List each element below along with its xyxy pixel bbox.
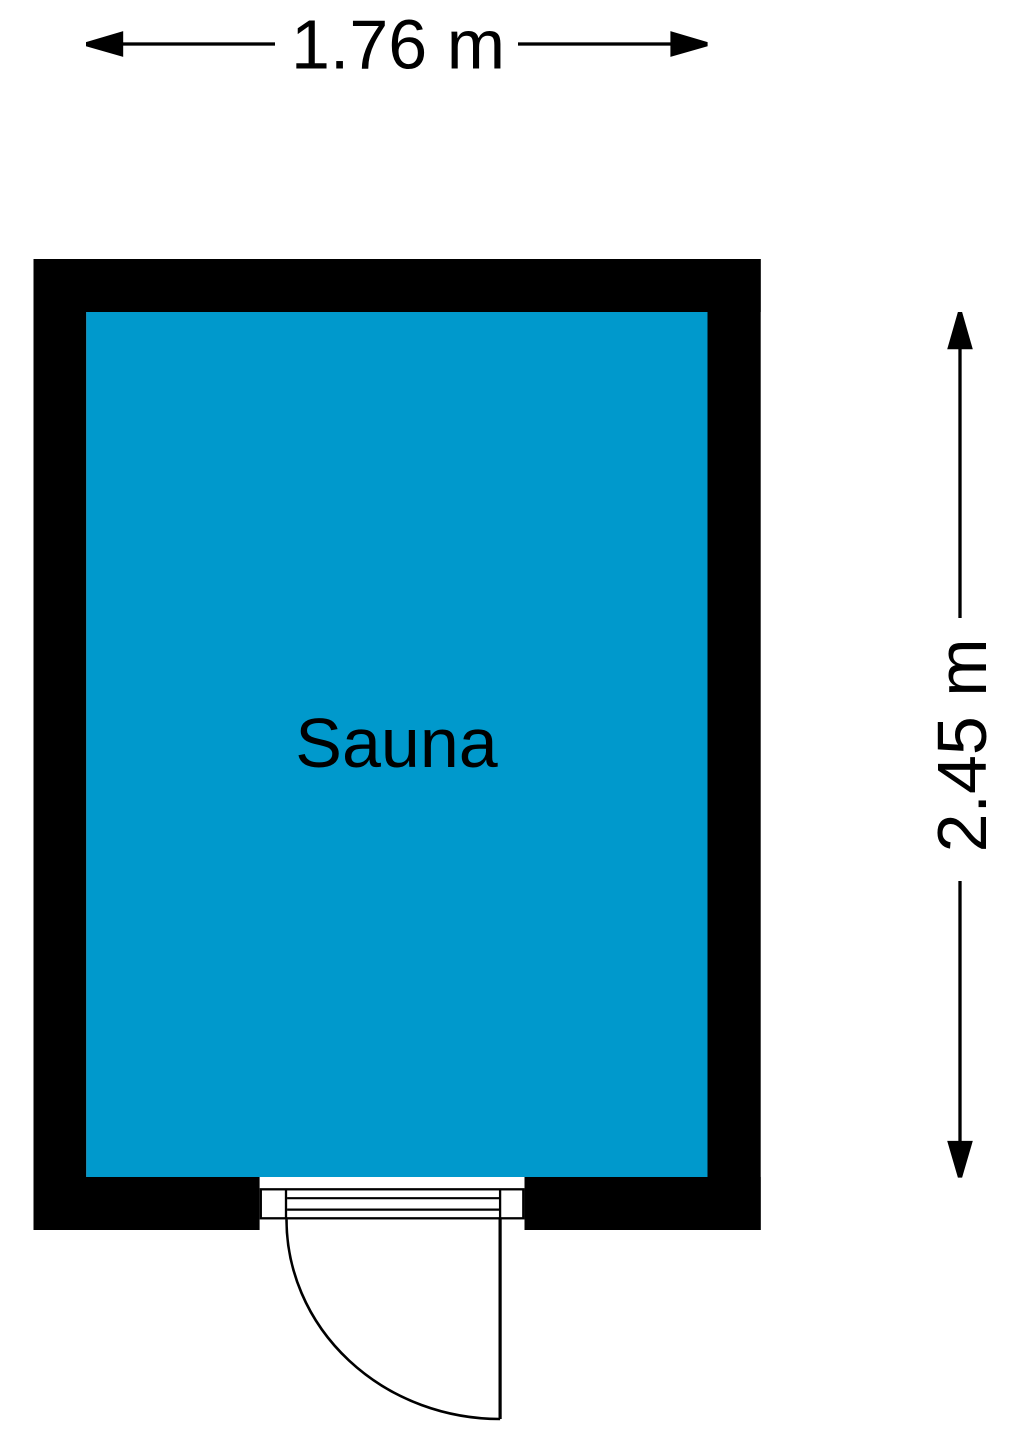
svg-text:2.45 m: 2.45 m xyxy=(923,638,1001,852)
svg-text:Sauna: Sauna xyxy=(295,704,497,782)
svg-text:1.76 m: 1.76 m xyxy=(291,6,505,84)
